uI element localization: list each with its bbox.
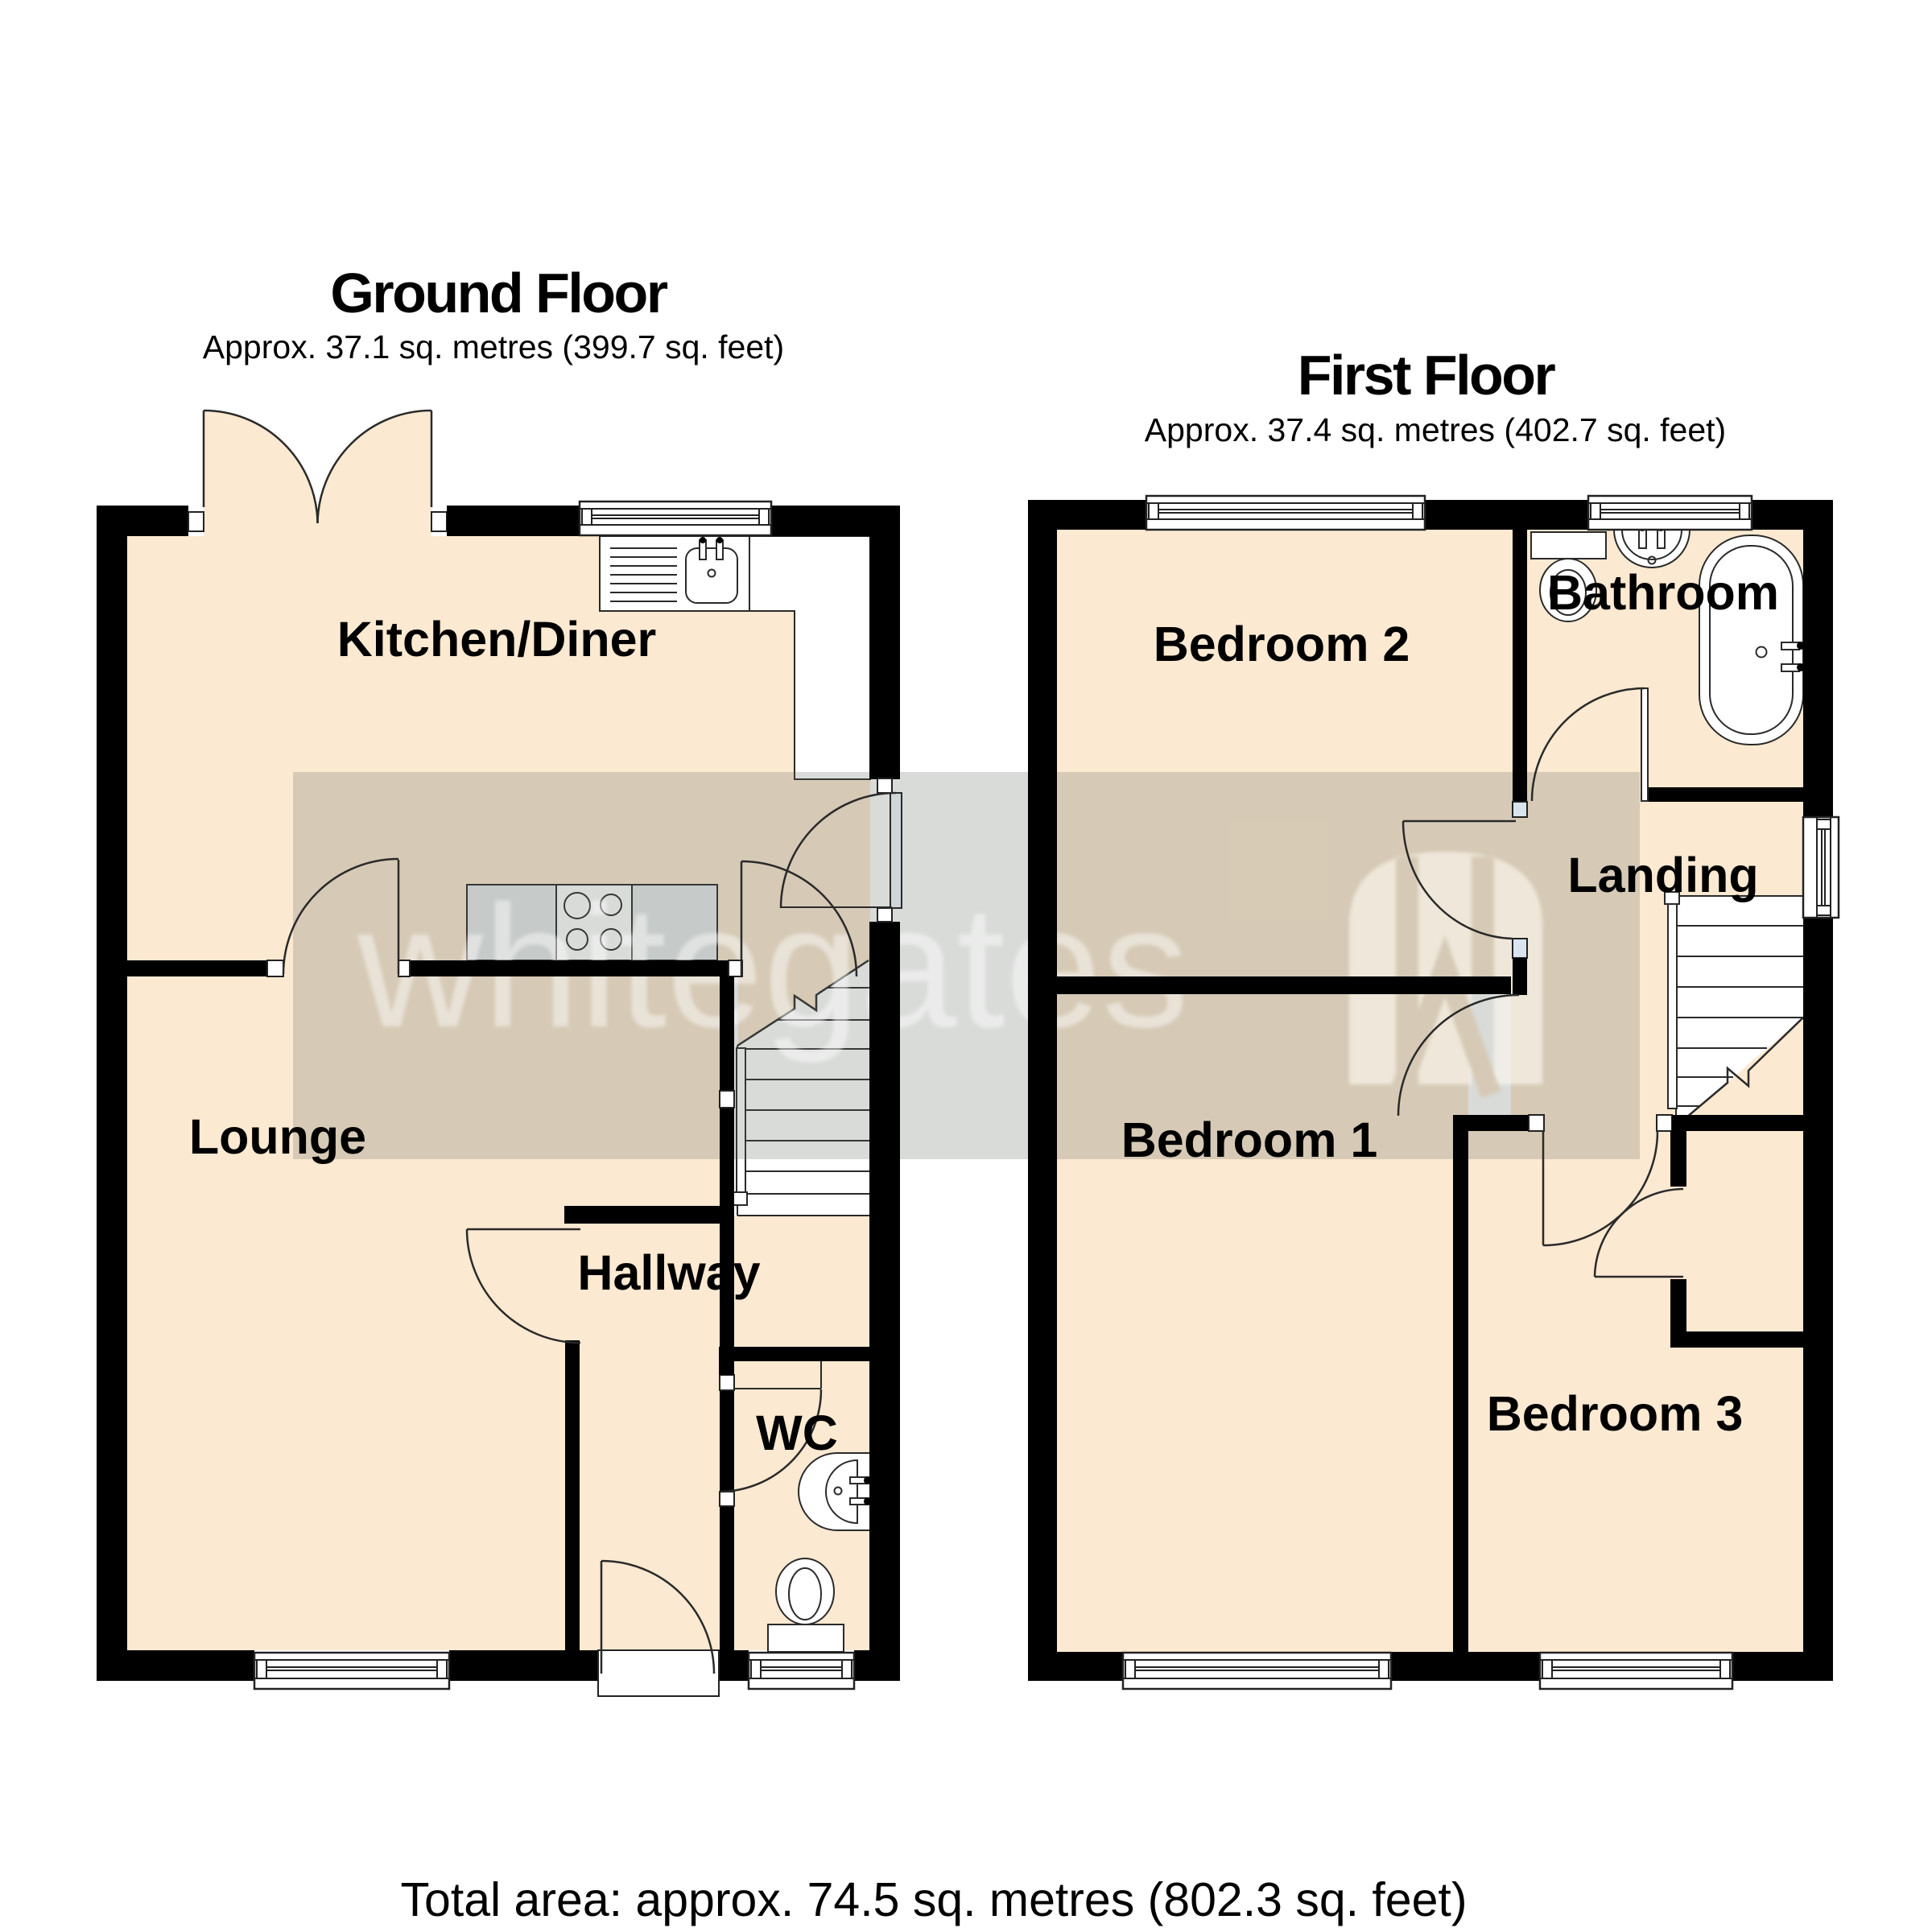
svg-text:Approx. 37.1 sq. metres (399.7: Approx. 37.1 sq. metres (399.7 sq. feet): [203, 328, 784, 365]
svg-text:Bedroom 1: Bedroom 1: [1121, 1113, 1378, 1167]
svg-text:Bedroom 3: Bedroom 3: [1487, 1386, 1744, 1441]
svg-text:Total area: approx. 74.5 sq. m: Total area: approx. 74.5 sq. metres (802…: [401, 1873, 1468, 1926]
svg-text:WC: WC: [756, 1406, 838, 1460]
svg-text:Approx. 37.4 sq. metres (402.7: Approx. 37.4 sq. metres (402.7 sq. feet): [1145, 411, 1726, 448]
svg-text:Lounge: Lounge: [189, 1109, 366, 1164]
svg-text:Hallway: Hallway: [577, 1245, 760, 1300]
svg-text:Bathroom: Bathroom: [1547, 565, 1779, 620]
svg-text:Ground Floor: Ground Floor: [330, 262, 667, 324]
svg-text:Kitchen/Diner: Kitchen/Diner: [337, 612, 657, 667]
svg-text:First Floor: First Floor: [1298, 344, 1556, 407]
svg-text:Landing: Landing: [1567, 848, 1758, 902]
svg-text:Bedroom 2: Bedroom 2: [1154, 617, 1410, 671]
